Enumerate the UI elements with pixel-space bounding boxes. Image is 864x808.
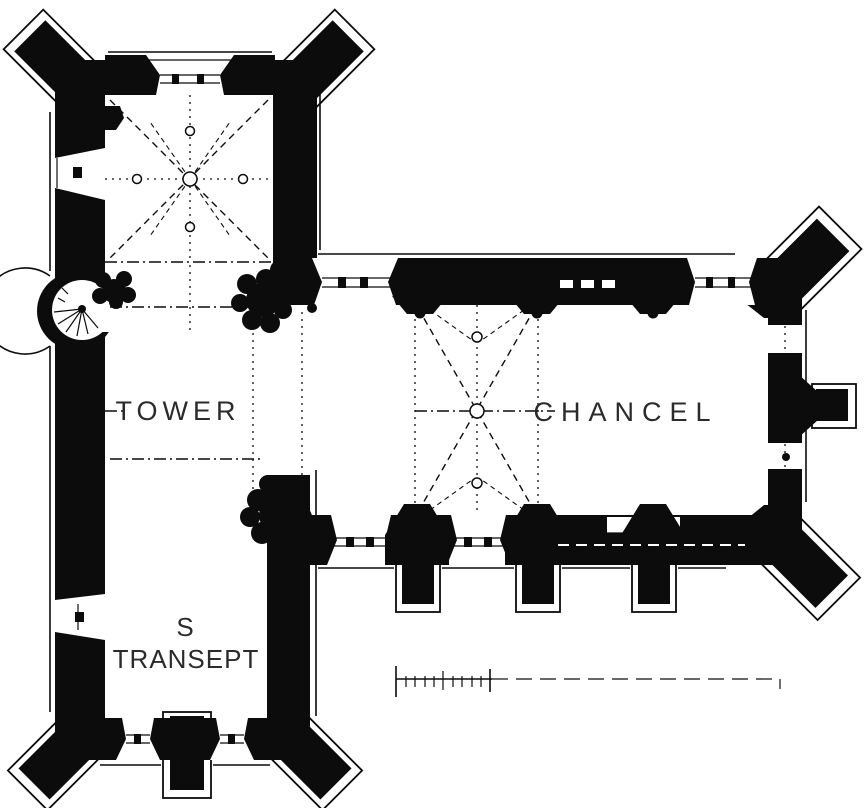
s-transept-label-line1: S: [176, 612, 193, 642]
chancel-north-window-2: [687, 258, 757, 305]
church-floor-plan: TOWER S TRANSEPT CHANCEL: [0, 0, 864, 808]
s-transept-label-line2: TRANSEPT: [113, 644, 260, 674]
chancel-label: CHANCEL: [533, 397, 718, 427]
scale-bar: [396, 666, 780, 697]
tower-vault: [105, 95, 275, 262]
tower-label: TOWER: [116, 396, 241, 426]
chancel-south-window-1: [327, 515, 395, 565]
chancel-north-window-1: [312, 258, 398, 305]
chancel-east-buttress: [812, 384, 856, 428]
